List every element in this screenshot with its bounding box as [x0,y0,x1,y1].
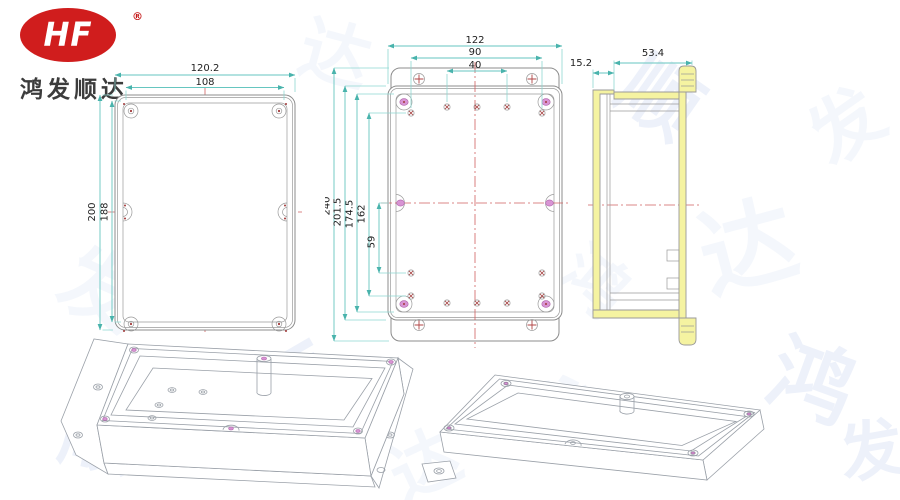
lid-front-view: 120.2 108 200 188 [88,58,310,344]
base-plan-view: 122 90 40 240 201.5 174.5 162 [325,30,575,356]
dim-label: 15.2 [570,58,592,69]
isometric-base-view [60,332,425,500]
box-rim [97,344,398,438]
watermark-text: 发 [796,76,896,176]
section-walls [593,66,696,345]
dimensions: 15.2 53.4 [570,48,692,90]
dim-label: 188 [100,202,111,221]
lid-outline [115,95,295,330]
dim-label: 174.5 [345,200,356,229]
dim-label: 53.4 [642,48,664,59]
drawing-sheet: 鸿 发 顺 达 鸿 发 顺 达 鸿 发 顺 达 鸿 发 HF ® 鸿发顺达 [0,0,900,500]
dim-label: 120.2 [191,63,220,74]
registered-trademark-symbol: ® [132,10,143,23]
logo-monogram: HF [43,16,92,54]
dim-label: 90 [469,47,482,58]
dim-label: 200 [88,202,98,221]
dim-label: 240 [325,196,333,215]
hf-logo-mark: HF [20,8,116,62]
isometric-lid-view [420,352,795,500]
dim-label: 59 [367,236,378,249]
dim-label: 162 [357,204,368,223]
dim-label: 201.5 [333,198,344,227]
watermark-text: 发 [835,415,900,489]
dim-label: 122 [465,35,484,46]
adjacent-flange-piece [422,461,456,482]
interior-lines [607,94,679,310]
side-section-view: 15.2 53.4 [555,40,710,359]
dim-label: 40 [469,60,482,71]
dim-label: 108 [195,77,214,88]
